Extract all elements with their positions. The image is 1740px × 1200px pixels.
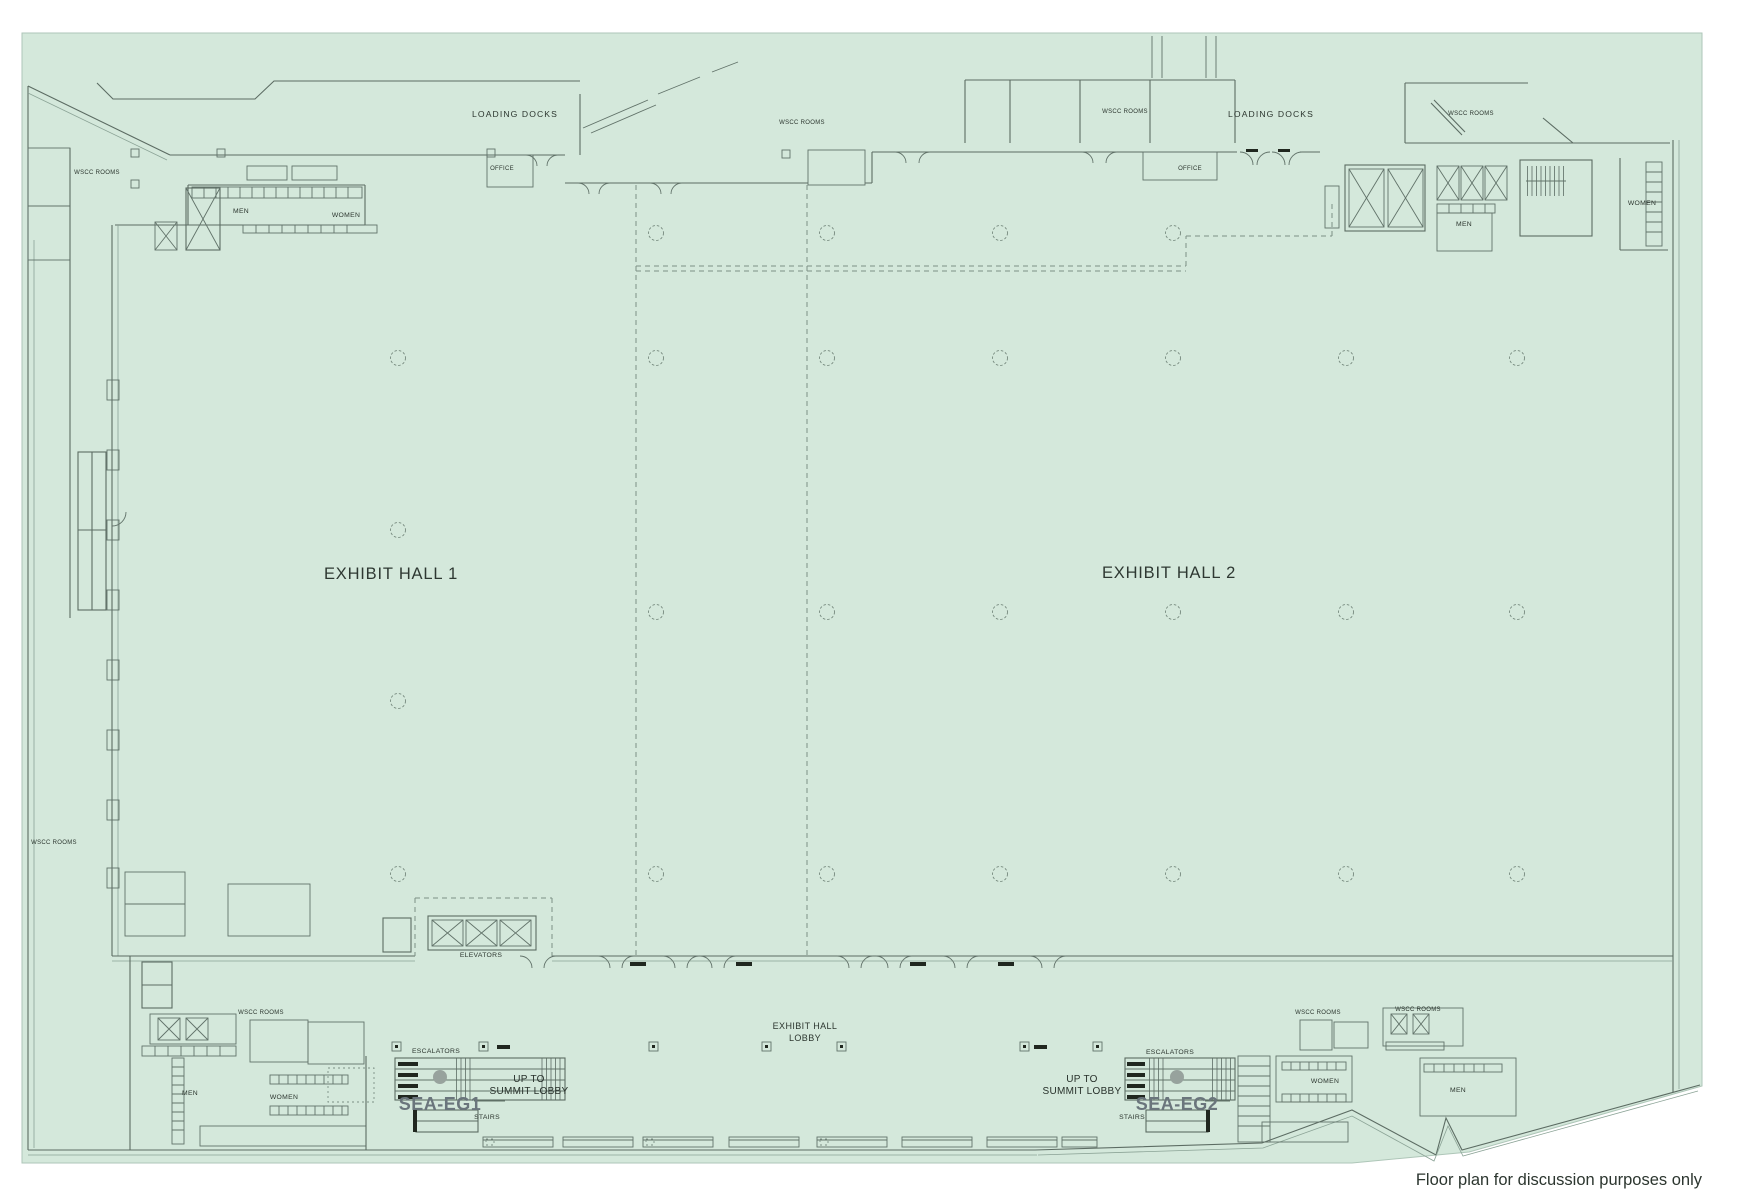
floor-slab	[22, 33, 1702, 1163]
disclaimer-text: Floor plan for discussion purposes only	[1416, 1171, 1703, 1189]
elevators-label: ELEVATORS	[460, 952, 503, 959]
men-label-top-left: MEN	[233, 208, 249, 215]
exhibit-hall-1-label: EXHIBIT HALL 1	[324, 565, 458, 583]
women-label-bottom-left: WOMEN	[270, 1094, 298, 1101]
stairs-label-right: STAIRS	[1119, 1114, 1145, 1121]
men-label-bottom-left: MEN	[182, 1090, 198, 1097]
wscc-rooms-label-top-left: WSCC ROOMS	[74, 170, 120, 176]
loading-docks-label-left: LOADING DOCKS	[472, 109, 558, 119]
wscc-rooms-label-bottom-right-2: WSCC ROOMS	[1395, 1007, 1441, 1013]
summit-lobby-label-right: SUMMIT LOBBY	[1043, 1086, 1122, 1097]
wscc-rooms-label-left-mid: WSCC ROOMS	[31, 840, 77, 846]
floor-plan-canvas: LOADING DOCKS LOADING DOCKS WSCC ROOMS W…	[0, 0, 1740, 1200]
location-dot-eg2	[1170, 1070, 1184, 1084]
wscc-rooms-label-top-right-2: WSCC ROOMS	[1448, 111, 1494, 117]
location-dot-eg1	[433, 1070, 447, 1084]
wscc-rooms-label-top-right-1: WSCC ROOMS	[1102, 109, 1148, 115]
stairs-label-left: STAIRS	[474, 1114, 500, 1121]
men-label-top-right: MEN	[1456, 221, 1472, 228]
lobby-label-line2: LOBBY	[789, 1033, 821, 1043]
women-label-top-right: WOMEN	[1628, 200, 1656, 207]
sea-eg1-label: SEA-EG1	[399, 1094, 482, 1114]
office-label-left: OFFICE	[490, 166, 514, 172]
office-label-right: OFFICE	[1178, 166, 1202, 172]
summit-lobby-label-left: SUMMIT LOBBY	[490, 1086, 569, 1097]
men-label-bottom-right: MEN	[1450, 1087, 1466, 1094]
loading-docks-label-right: LOADING DOCKS	[1228, 109, 1314, 119]
up-to-label-left: UP TO	[513, 1074, 545, 1085]
wscc-rooms-label-top-center: WSCC ROOMS	[779, 120, 825, 126]
escalators-label-right: ESCALATORS	[1146, 1049, 1194, 1056]
wscc-rooms-label-bottom-left: WSCC ROOMS	[238, 1010, 284, 1016]
wscc-rooms-label-bottom-right-1: WSCC ROOMS	[1295, 1010, 1341, 1016]
exhibit-hall-2-label: EXHIBIT HALL 2	[1102, 564, 1236, 582]
up-to-label-right: UP TO	[1066, 1074, 1098, 1085]
women-label-bottom-right: WOMEN	[1311, 1078, 1339, 1085]
sea-eg2-label: SEA-EG2	[1136, 1094, 1219, 1114]
floor-plan-page: LOADING DOCKS LOADING DOCKS WSCC ROOMS W…	[0, 0, 1740, 1200]
lobby-label-line1: EXHIBIT HALL	[773, 1021, 838, 1031]
women-label-top-left: WOMEN	[332, 212, 360, 219]
escalators-label-left: ESCALATORS	[412, 1048, 460, 1055]
